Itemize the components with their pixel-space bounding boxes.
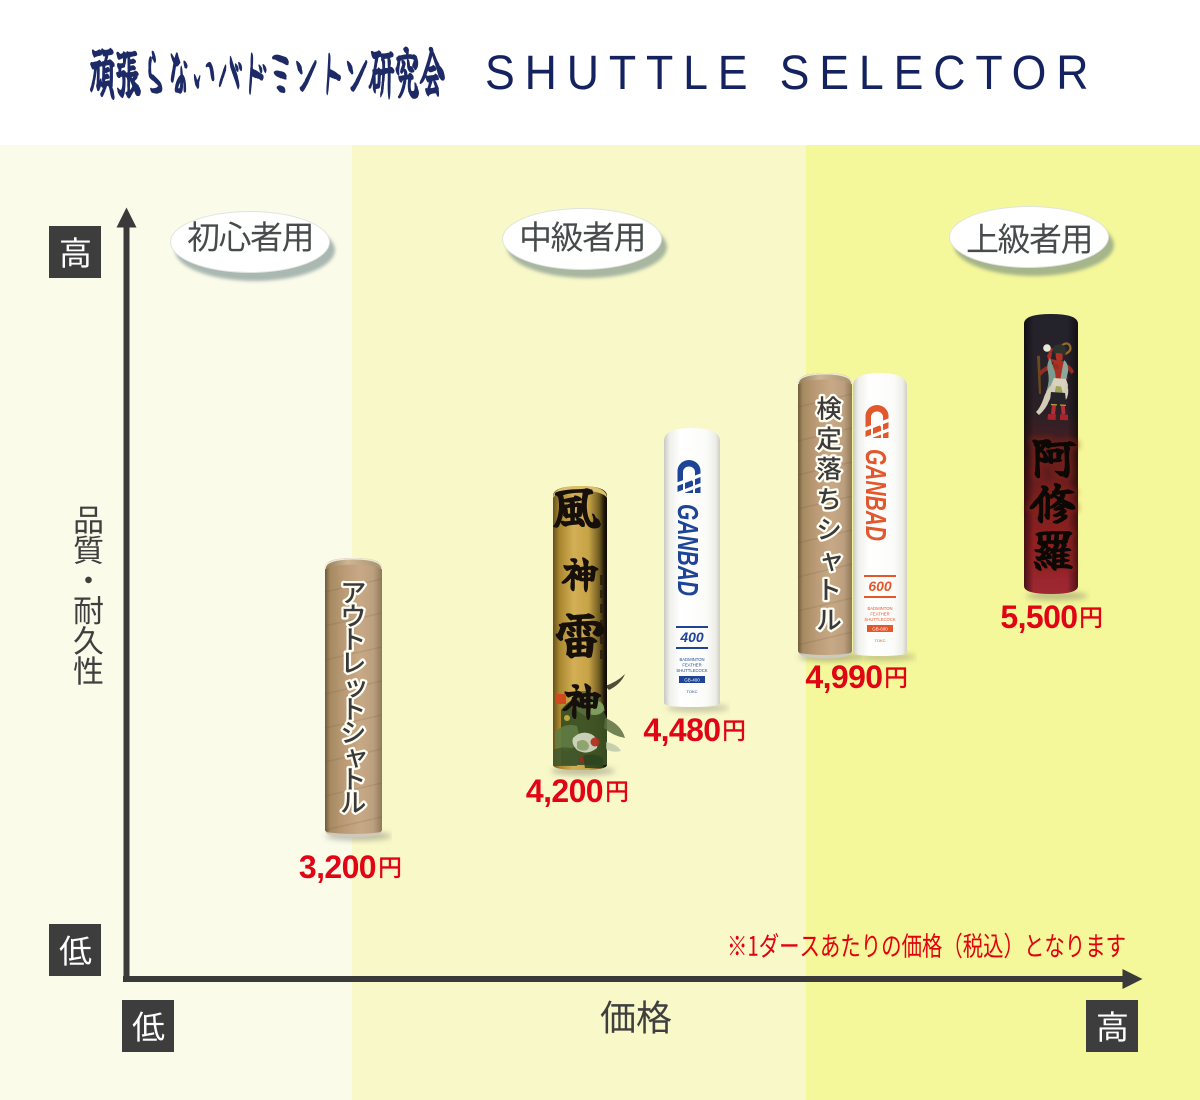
svg-text:400: 400 xyxy=(679,629,704,645)
svg-text:600: 600 xyxy=(868,578,892,594)
svg-text:SHUTTLECOCK: SHUTTLECOCK xyxy=(676,668,707,673)
svg-text:BADMINTON: BADMINTON xyxy=(867,606,892,611)
svg-text:GANBAD: GANBAD xyxy=(859,449,891,541)
svg-text:FEATHER: FEATHER xyxy=(870,612,889,617)
svg-text:BADMINTON: BADMINTON xyxy=(679,657,704,662)
svg-text:GB-400: GB-400 xyxy=(684,678,700,683)
svg-text:GANBAD: GANBAD xyxy=(671,504,703,596)
svg-text:TOKC: TOKC xyxy=(686,689,697,694)
svg-text:GB-600: GB-600 xyxy=(872,627,888,632)
svg-text:TOKC: TOKC xyxy=(874,638,885,643)
svg-text:FEATHER: FEATHER xyxy=(682,663,701,668)
svg-text:SHUTTLECOCK: SHUTTLECOCK xyxy=(864,617,895,622)
